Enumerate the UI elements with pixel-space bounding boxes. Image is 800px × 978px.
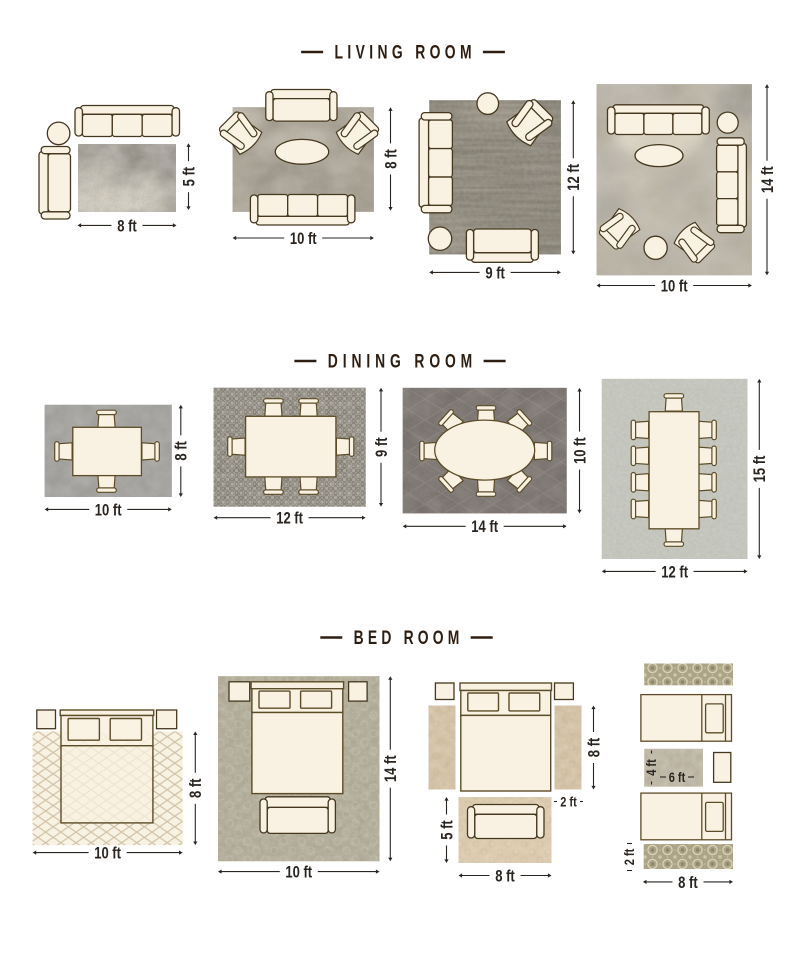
svg-text:10 ft: 10 ft (285, 864, 312, 882)
svg-text:2 ft: 2 ft (560, 794, 577, 810)
svg-text:9 ft: 9 ft (485, 265, 505, 283)
svg-text:DINING ROOM: DINING ROOM (328, 350, 477, 372)
svg-text:8 ft: 8 ft (173, 441, 191, 461)
svg-text:9 ft: 9 ft (374, 437, 392, 457)
svg-text:2 ft: 2 ft (622, 848, 638, 865)
svg-text:10 ft: 10 ft (95, 502, 122, 520)
svg-text:12 ft: 12 ft (276, 510, 303, 528)
svg-text:LIVING ROOM: LIVING ROOM (335, 41, 476, 63)
svg-text:10 ft: 10 ft (94, 845, 121, 863)
svg-text:4 ft: 4 ft (644, 759, 660, 776)
svg-text:8 ft: 8 ft (383, 149, 401, 169)
svg-text:6 ft: 6 ft (669, 770, 686, 786)
svg-text:8 ft: 8 ft (188, 778, 206, 798)
svg-text:14 ft: 14 ft (760, 166, 778, 193)
svg-text:10 ft: 10 ft (572, 437, 590, 464)
svg-text:8 ft: 8 ft (495, 868, 515, 886)
svg-text:8 ft: 8 ft (586, 738, 604, 758)
svg-text:15 ft: 15 ft (752, 456, 770, 483)
svg-text:10 ft: 10 ft (290, 231, 317, 249)
svg-text:10 ft: 10 ft (661, 278, 688, 296)
svg-text:5 ft: 5 ft (181, 167, 199, 187)
svg-text:5 ft: 5 ft (439, 820, 457, 840)
svg-text:14 ft: 14 ft (383, 755, 401, 782)
svg-text:BED ROOM: BED ROOM (354, 627, 464, 649)
svg-text:8 ft: 8 ft (678, 875, 698, 893)
svg-text:14 ft: 14 ft (471, 519, 498, 537)
svg-text:12 ft: 12 ft (661, 564, 688, 582)
svg-text:12 ft: 12 ft (566, 164, 584, 191)
svg-text:8 ft: 8 ft (117, 218, 137, 236)
